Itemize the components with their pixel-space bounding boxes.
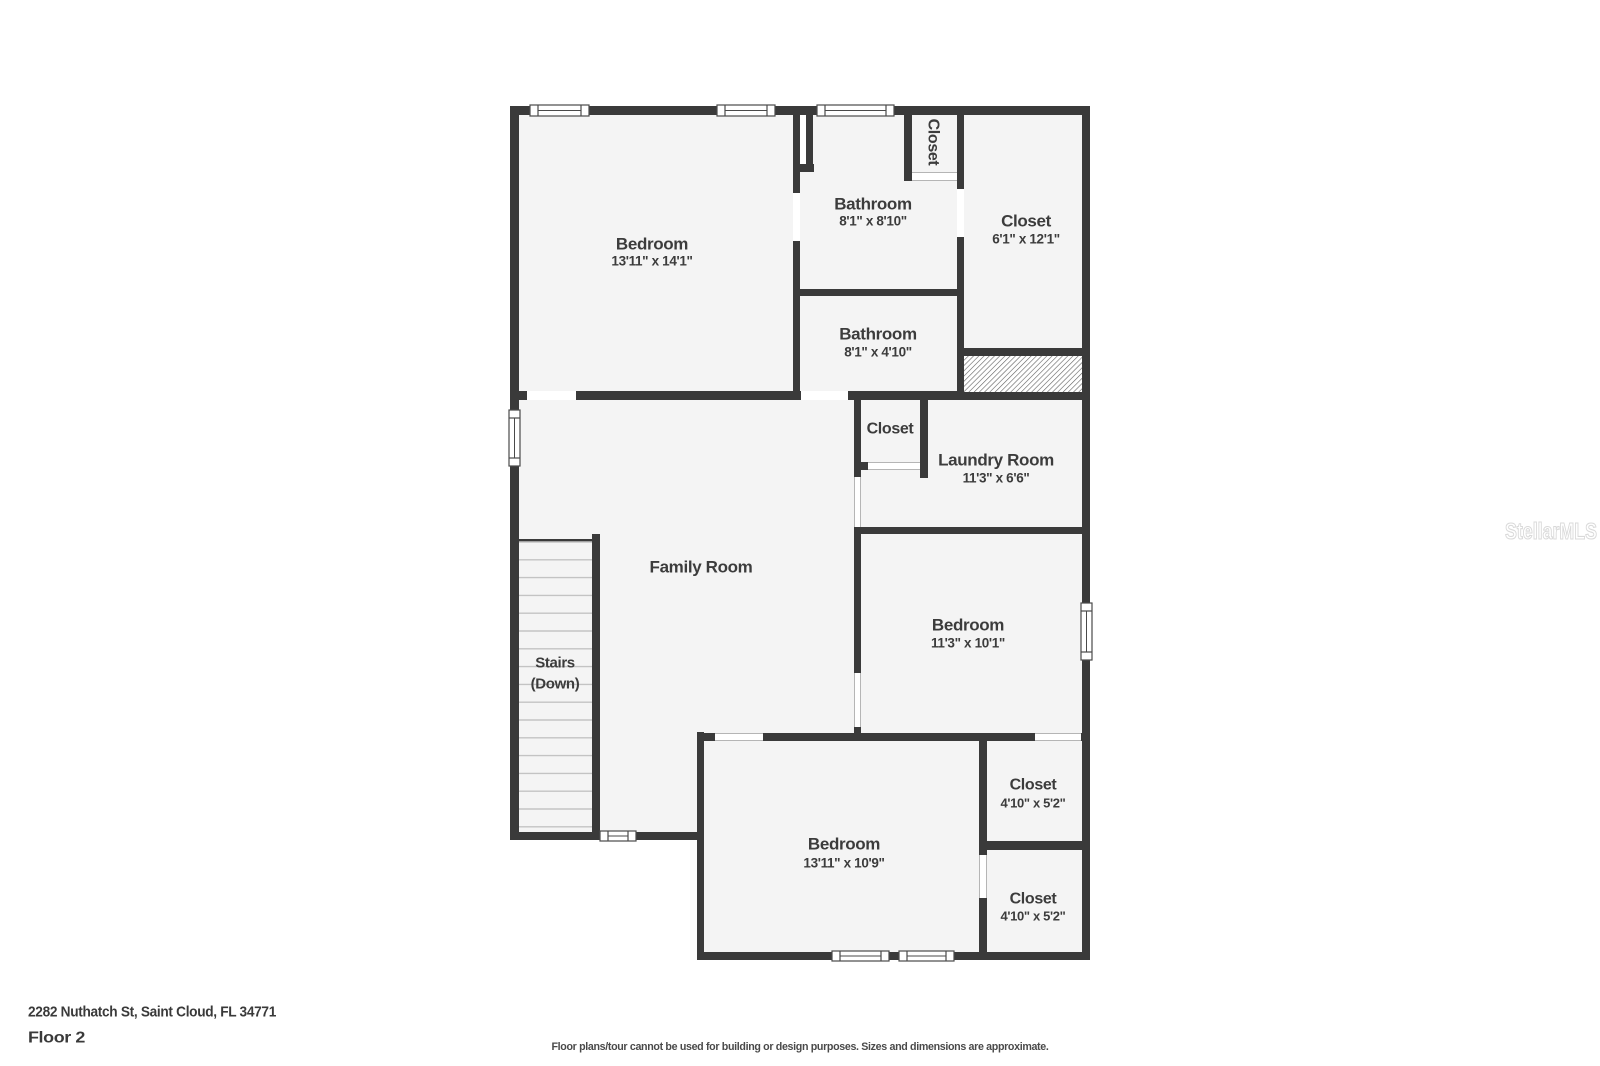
svg-text:8'1" x 8'10": 8'1" x 8'10": [839, 214, 907, 229]
svg-text:2282 Nuthatch St, Saint Cloud,: 2282 Nuthatch St, Saint Cloud, FL 34771: [28, 1004, 276, 1021]
svg-text:6'1" x 12'1": 6'1" x 12'1": [992, 232, 1060, 247]
svg-text:Laundry Room: Laundry Room: [938, 451, 1054, 470]
svg-text:Bedroom: Bedroom: [616, 235, 688, 254]
svg-text:(Down): (Down): [531, 676, 580, 693]
svg-text:11'3" x 6'6": 11'3" x 6'6": [963, 471, 1030, 486]
svg-text:8'1" x 4'10": 8'1" x 4'10": [844, 345, 912, 360]
svg-text:13'11" x 14'1": 13'11" x 14'1": [611, 254, 692, 269]
svg-text:11'3" x 10'1": 11'3" x 10'1": [931, 636, 1005, 651]
svg-text:13'11" x 10'9": 13'11" x 10'9": [803, 856, 884, 871]
svg-text:Bedroom: Bedroom: [932, 616, 1004, 635]
svg-text:Stairs: Stairs: [535, 655, 575, 672]
svg-text:Bathroom: Bathroom: [839, 325, 917, 344]
svg-text:4'10" x 5'2": 4'10" x 5'2": [1001, 796, 1066, 811]
svg-text:Closet: Closet: [1010, 777, 1058, 794]
svg-text:Closet: Closet: [925, 119, 942, 167]
svg-text:4'10" x 5'2": 4'10" x 5'2": [1001, 909, 1066, 924]
svg-text:Closet: Closet: [1010, 891, 1058, 908]
svg-text:Closet: Closet: [1001, 212, 1052, 231]
svg-text:Floor 2: Floor 2: [28, 1030, 86, 1047]
svg-text:Family Room: Family Room: [650, 558, 753, 577]
svg-text:Bathroom: Bathroom: [834, 195, 912, 214]
svg-text:Bedroom: Bedroom: [808, 835, 880, 854]
svg-text:Closet: Closet: [867, 421, 915, 438]
svg-text:StellarMLS: StellarMLS: [1505, 518, 1597, 544]
svg-text:Floor plans/tour cannot be use: Floor plans/tour cannot be used for buil…: [552, 1041, 1049, 1053]
